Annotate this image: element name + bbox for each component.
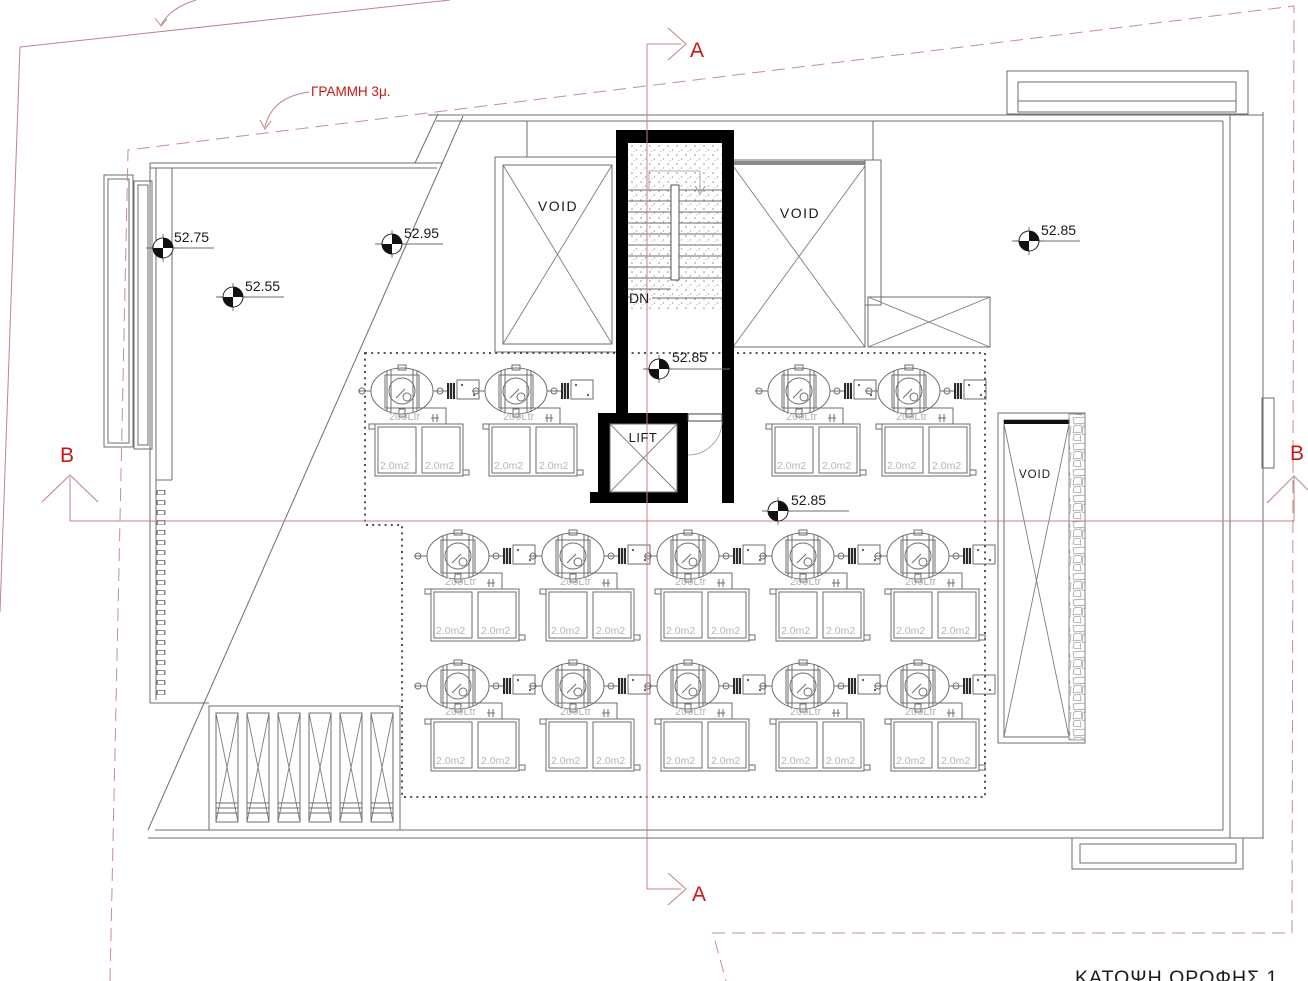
section-letter-b-right: B (1290, 442, 1304, 465)
section-letter-a-top: A (690, 39, 704, 62)
void-label-left: VOID (538, 198, 578, 214)
louver-panel (340, 713, 362, 822)
right-wall-niche (1262, 398, 1274, 468)
top-right-parapet (1007, 71, 1248, 114)
solar-water-heater-unit (414, 660, 535, 771)
solar-water-heater-unit (874, 660, 995, 771)
louver-panel (247, 713, 269, 822)
benchmark-52-95: 52.95 (375, 225, 443, 258)
louver-bank (209, 706, 400, 830)
elevation-value: 52.85 (791, 492, 826, 508)
louver-panel (216, 713, 238, 822)
void-right (733, 160, 990, 347)
louver-panel (278, 713, 300, 822)
bottom-right-parapet (1072, 838, 1243, 869)
elevation-value: 52.95 (404, 225, 439, 241)
setback-label-leader (260, 92, 309, 129)
lift-shaft (590, 413, 688, 503)
elevation-value: 52.55 (245, 278, 280, 294)
solar-water-heater-unit (529, 530, 650, 641)
louver-panel (371, 713, 393, 822)
stone-texture-strip (1069, 414, 1085, 740)
section-arrow-icon (1267, 476, 1308, 503)
benchmark-52-85-top-right: 52.85 (1012, 222, 1080, 255)
solar-water-heater-unit (865, 365, 986, 476)
stair-down-label: DN (629, 290, 649, 306)
solar-water-heater-unit (472, 365, 593, 476)
benchmark-icon (149, 234, 177, 262)
floor-plan-page: 200Ltr 2.0m2 2.0m2 (0, 0, 1308, 981)
solar-water-heater-unit (414, 530, 535, 641)
spot-elevations: 52.75 52.55 52.95 52.85 52.85 52.85 (146, 222, 1080, 525)
solar-water-heater-unit (759, 530, 880, 641)
solar-water-heater-unit (874, 530, 995, 641)
void-left (495, 157, 620, 352)
solar-water-heater-unit (755, 365, 876, 476)
left-side-panels (104, 175, 152, 449)
elevation-value: 52.75 (174, 229, 209, 245)
louver-panel (309, 713, 331, 822)
benchmark-52-85-mid: 52.85 (762, 492, 849, 525)
void-tall-right (998, 413, 1085, 743)
benchmark-52-55: 52.55 (216, 278, 284, 311)
solar-water-heater-unit (358, 365, 479, 476)
benchmark-icon (219, 283, 247, 311)
stair-rail (671, 185, 679, 280)
benchmark-icon (645, 355, 673, 383)
lift-label: LIFT (629, 430, 658, 445)
solar-water-heater-unit (759, 660, 880, 771)
void-label-right: VOID (780, 205, 820, 221)
drawing-title: ΚΑΤΟΨΗ ΟΡΟΦΗΣ 1 (1075, 967, 1278, 981)
solar-water-heater-unit (644, 660, 765, 771)
stair-core (616, 130, 734, 503)
elevation-value: 52.85 (672, 349, 707, 365)
section-letter-a-bottom: A (692, 883, 706, 906)
elevation-value: 52.85 (1041, 222, 1076, 238)
benchmark-icon (1015, 227, 1043, 255)
door-swing-arc (688, 421, 722, 455)
solar-water-heater-unit (644, 530, 765, 641)
solar-water-heater-unit (529, 660, 650, 771)
section-letter-b-left: B (60, 444, 74, 467)
setback-line-label: ΓΡΑΜΜΗ 3μ. (311, 84, 390, 99)
lift-lobby-door (688, 414, 722, 455)
void-label-tall: VOID (1019, 469, 1051, 481)
floor-plan-svg: 200Ltr 2.0m2 2.0m2 (0, 0, 1308, 981)
benchmark-52-85-stair: 52.85 (643, 349, 730, 383)
